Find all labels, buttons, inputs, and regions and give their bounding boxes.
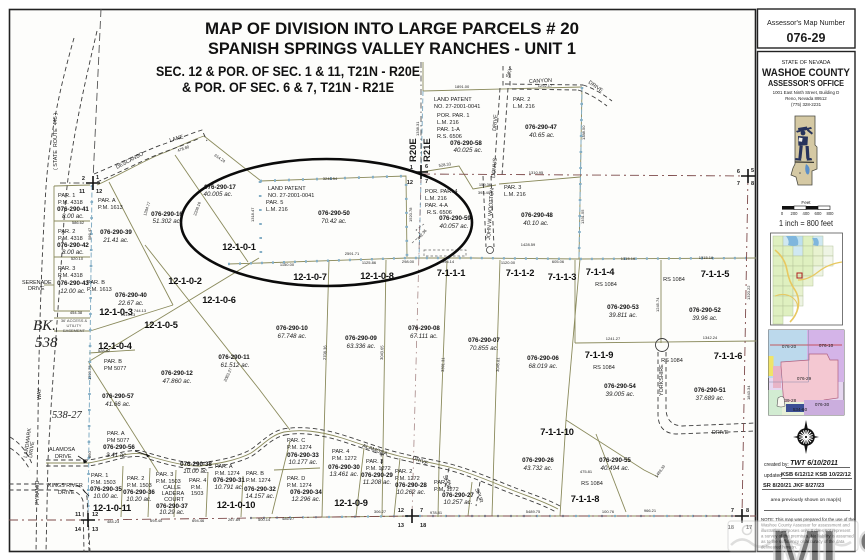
svg-text:076-290-27: 076-290-27: [442, 492, 474, 499]
svg-text:13.461 ac.: 13.461 ac.: [330, 471, 359, 478]
svg-text:7-1-1-4: 7-1-1-4: [586, 267, 616, 277]
svg-text:12-1-0-11: 12-1-0-11: [93, 503, 131, 513]
svg-text:R20E: R20E: [408, 138, 419, 162]
svg-text:40.494 ac.: 40.494 ac.: [601, 465, 630, 472]
svg-text:076-290-57: 076-290-57: [102, 393, 134, 400]
svg-text:520.10: 520.10: [71, 256, 84, 261]
svg-text:RS 1084: RS 1084: [593, 365, 615, 371]
svg-text:47.860 ac.: 47.860 ac.: [163, 378, 192, 385]
svg-text:1001 East Ninth Street, Buildi: 1001 East Ninth Street, Building D: [773, 90, 840, 95]
svg-text:076-290-55: 076-290-55: [599, 457, 631, 464]
svg-text:8: 8: [751, 181, 754, 187]
svg-text:076-290-53: 076-290-53: [607, 304, 639, 311]
svg-text:1150.00: 1150.00: [280, 262, 295, 267]
svg-text:37.689 ac.: 37.689 ac.: [696, 395, 725, 402]
svg-text:11: 11: [79, 189, 85, 195]
svg-text:STATE OF NEVADA: STATE OF NEVADA: [782, 60, 831, 66]
svg-text:076-290-52: 076-290-52: [689, 307, 721, 314]
svg-text:486.27: 486.27: [282, 516, 295, 521]
svg-text:1245.74: 1245.74: [655, 297, 660, 312]
svg-text:18: 18: [420, 523, 426, 529]
svg-text:2708.36: 2708.36: [322, 345, 328, 360]
svg-text:076-290-35: 076-290-35: [90, 486, 122, 493]
svg-text:076-290-42: 076-290-42: [57, 242, 89, 249]
svg-text:1891.00: 1891.00: [455, 84, 470, 89]
svg-text:076-290-43: 076-290-43: [57, 280, 89, 287]
svg-text:1: 1: [96, 175, 99, 181]
svg-text:7-1-1-9: 7-1-1-9: [585, 350, 614, 360]
svg-text:40.65 ac.: 40.65 ac.: [529, 132, 554, 139]
svg-text:8.00 ac.: 8.00 ac.: [62, 213, 84, 220]
svg-text:1125.86: 1125.86: [362, 260, 377, 265]
svg-text:076-290-56: 076-290-56: [103, 444, 135, 451]
svg-text:Assessor's Map Number: Assessor's Map Number: [767, 18, 846, 27]
svg-text:LAND PATENT: LAND PATENT: [434, 97, 472, 103]
svg-text:3391.31: 3391.31: [440, 357, 446, 372]
svg-text:WASHOE COUNTY: WASHOE COUNTY: [762, 67, 851, 79]
svg-text:R21E: R21E: [422, 138, 433, 162]
svg-text:076-290-31: 076-290-31: [213, 477, 245, 484]
svg-text:5489.75: 5489.75: [526, 509, 541, 514]
svg-text:area previously shown on map(s: area previously shown on map(s): [771, 497, 842, 503]
svg-text:PAR. 2: PAR. 2: [58, 229, 75, 235]
svg-text:694.46: 694.46: [192, 518, 205, 523]
svg-text:200: 200: [791, 211, 799, 216]
svg-text:PAR. 3: PAR. 3: [58, 266, 75, 272]
svg-text:67.748 ac.: 67.748 ac.: [278, 333, 307, 340]
svg-text:6: 6: [737, 169, 740, 175]
svg-text:51.302 ac.: 51.302 ac.: [153, 218, 182, 225]
svg-text:7-1-1-8: 7-1-1-8: [571, 494, 600, 504]
svg-text:2: 2: [82, 176, 85, 182]
svg-text:076-290-07: 076-290-07: [468, 337, 500, 344]
svg-text:L.M. 216: L.M. 216: [437, 120, 459, 126]
svg-text:14.157 ac.: 14.157 ac.: [246, 493, 275, 500]
svg-text:12-1-0-5: 12-1-0-5: [144, 320, 178, 330]
svg-text:076-290-06: 076-290-06: [527, 355, 559, 362]
svg-text:076-290-36: 076-290-36: [123, 489, 155, 496]
svg-text:L.M. 216: L.M. 216: [513, 104, 535, 110]
svg-text:12: 12: [398, 508, 404, 514]
svg-text:L.M. 216: L.M. 216: [266, 207, 288, 213]
svg-text:7-1-1-3: 7-1-1-3: [548, 272, 577, 282]
svg-text:EASEMENT: EASEMENT: [63, 328, 86, 333]
svg-text:RS 1084: RS 1084: [661, 358, 683, 364]
svg-text:694.40: 694.40: [150, 518, 163, 523]
svg-text:484.23: 484.23: [107, 519, 120, 524]
svg-text:12-1-0-10: 12-1-0-10: [217, 500, 256, 510]
svg-text:1503: 1503: [191, 491, 203, 497]
svg-text:1292.17: 1292.17: [538, 83, 553, 88]
svg-text:076-290-10: 076-290-10: [276, 325, 308, 332]
svg-text:800: 800: [827, 211, 835, 216]
svg-text:1241.27: 1241.27: [606, 336, 621, 341]
svg-text:12-1-0-7: 12-1-0-7: [293, 272, 327, 282]
svg-text:076-20: 076-20: [782, 344, 797, 349]
svg-text:PAR. C: PAR. C: [287, 438, 305, 444]
svg-text:3.41 ac.: 3.41 ac.: [106, 452, 128, 459]
svg-text:40.10 ac.: 40.10 ac.: [523, 220, 548, 227]
svg-text:076-290-16: 076-290-16: [151, 211, 183, 218]
svg-text:43.732 ac.: 43.732 ac.: [524, 465, 553, 472]
svg-text:PYRAMID: PYRAMID: [35, 480, 41, 505]
svg-text:1315.16: 1315.16: [621, 256, 636, 261]
svg-text:10.29 ac.: 10.29 ac.: [159, 509, 184, 516]
svg-text:PAR. A: PAR. A: [98, 198, 116, 204]
svg-text:PAR. A: PAR. A: [107, 431, 125, 437]
svg-text:70.855 ac.: 70.855 ac.: [470, 345, 499, 352]
svg-text:67.111 ac.: 67.111 ac.: [410, 333, 438, 340]
svg-text:995.14: 995.14: [442, 259, 455, 264]
svg-text:61.512 ac.: 61.512 ac.: [221, 362, 250, 369]
svg-text:400: 400: [803, 211, 811, 216]
svg-text:PAR. 3: PAR. 3: [366, 459, 383, 465]
svg-text:11.208 ac.: 11.208 ac.: [363, 479, 391, 486]
svg-text:076-30: 076-30: [815, 402, 830, 407]
svg-text:1342.24: 1342.24: [703, 335, 718, 340]
svg-text:454.38: 454.38: [70, 310, 83, 315]
svg-text:39.811 ac.: 39.811 ac.: [609, 312, 637, 319]
svg-text:ALAMOSA: ALAMOSA: [49, 447, 75, 453]
svg-text:(775) 328-2231: (775) 328-2231: [791, 102, 822, 107]
svg-text:PM 5077: PM 5077: [104, 366, 126, 372]
svg-text:744.13: 744.13: [134, 308, 147, 313]
svg-text:KINGS RIVER: KINGS RIVER: [48, 483, 83, 489]
svg-text:P.M. 1274: P.M. 1274: [287, 445, 312, 451]
svg-text:076-29: 076-29: [787, 31, 826, 45]
svg-text:14: 14: [75, 527, 82, 533]
svg-text:13: 13: [398, 523, 404, 529]
svg-text:P.M. 1613: P.M. 1613: [98, 205, 123, 211]
svg-text:POR. PAR. 4: POR. PAR. 4: [425, 189, 458, 195]
svg-text:39.96 ac.: 39.96 ac.: [692, 315, 717, 322]
svg-text:7: 7: [731, 508, 734, 514]
svg-text:1 inch = 800 feet: 1 inch = 800 feet: [779, 219, 834, 228]
svg-text:1120.00: 1120.00: [501, 260, 516, 265]
svg-text:528.42: 528.42: [98, 348, 111, 353]
svg-text:DRIVE: DRIVE: [55, 454, 72, 460]
svg-text:3045.81: 3045.81: [495, 357, 501, 372]
svg-text:586.47: 586.47: [87, 227, 92, 240]
svg-text:076-290-11: 076-290-11: [218, 354, 250, 361]
svg-text:22.67 ac.: 22.67 ac.: [117, 300, 143, 307]
svg-text:1388.50: 1388.50: [581, 125, 586, 140]
svg-text:1318.47: 1318.47: [250, 207, 255, 222]
svg-text:1723.75: 1723.75: [87, 365, 92, 380]
svg-text:MLS: MLS: [770, 516, 865, 560]
svg-text:860: 860: [87, 451, 92, 458]
svg-text:500.14: 500.14: [258, 517, 271, 522]
svg-text:076-29: 076-29: [797, 376, 812, 381]
svg-text:1: 1: [410, 165, 413, 171]
svg-text:12.00 ac.: 12.00 ac.: [60, 288, 85, 295]
svg-text:978.81: 978.81: [430, 510, 443, 515]
svg-text:21.41 ac.: 21.41 ac.: [102, 237, 128, 244]
svg-text:41.66 ac.: 41.66 ac.: [105, 401, 130, 408]
svg-text:1338.31: 1338.31: [415, 121, 420, 136]
svg-text:DRIVE: DRIVE: [712, 430, 729, 436]
svg-text:12-1-0-6: 12-1-0-6: [202, 295, 236, 305]
svg-text:1320.22: 1320.22: [746, 285, 751, 300]
svg-text:10.791 ac.: 10.791 ac.: [215, 484, 244, 491]
svg-text:KSB 6/12/12 KSB 10/22/12: KSB 6/12/12 KSB 10/22/12: [781, 472, 851, 478]
svg-text:966.21: 966.21: [644, 508, 657, 513]
svg-text:076-290-12: 076-290-12: [161, 370, 193, 377]
svg-text:538-27: 538-27: [52, 410, 82, 421]
svg-text:076-290-41: 076-290-41: [57, 206, 89, 213]
svg-text:PAR. 2: PAR. 2: [127, 476, 144, 482]
svg-text:076-290-17: 076-290-17: [204, 184, 236, 191]
svg-text:PAR. B: PAR. B: [246, 471, 264, 477]
svg-text:L.M. 216: L.M. 216: [425, 196, 447, 202]
svg-text:12: 12: [96, 189, 102, 195]
svg-text:RS 1084: RS 1084: [663, 277, 685, 283]
svg-text:475.81: 475.81: [580, 469, 593, 474]
svg-text:076-290-26: 076-290-26: [522, 457, 554, 464]
svg-text:L.M. 216: L.M. 216: [504, 192, 526, 198]
svg-text:586.62: 586.62: [72, 220, 85, 225]
svg-text:076-290-28: 076-290-28: [395, 482, 427, 489]
svg-text:6: 6: [425, 164, 428, 170]
svg-text:076-290-30: 076-290-30: [328, 464, 360, 471]
svg-text:5: 5: [751, 168, 754, 174]
svg-text:1331.55: 1331.55: [580, 209, 585, 224]
svg-text:076-290-47: 076-290-47: [525, 124, 557, 131]
svg-text:076-290-29: 076-290-29: [361, 472, 393, 479]
svg-text:40.025 ac.: 40.025 ac.: [454, 147, 483, 154]
svg-text:076-290-40: 076-290-40: [115, 292, 147, 299]
svg-text:076-290-51: 076-290-51: [694, 387, 726, 394]
svg-text:YORKSHIRE: YORKSHIRE: [659, 364, 665, 396]
svg-text:SPANISH SPRINGS VALLEY RANCHES: SPANISH SPRINGS VALLEY RANCHES - UNIT 1: [208, 39, 576, 58]
svg-text:& POR. OF SEC. 6 & 7, T21N -: & POR. OF SEC. 6 & 7, T21N - R21E: [182, 80, 394, 95]
svg-text:8.00 ac.: 8.00 ac.: [62, 249, 84, 256]
svg-text:159.36: 159.36: [479, 182, 492, 187]
svg-text:11: 11: [75, 512, 81, 518]
svg-text:7: 7: [425, 179, 428, 185]
svg-text:7-1-1-1: 7-1-1-1: [437, 268, 466, 278]
svg-text:PAR. 2: PAR. 2: [395, 469, 412, 475]
svg-text:076-290-34: 076-290-34: [290, 489, 322, 496]
svg-text:393.40: 393.40: [478, 190, 491, 195]
svg-text:7-1-1-10: 7-1-1-10: [540, 427, 574, 437]
svg-text:12-1-0-8: 12-1-0-8: [360, 271, 394, 281]
svg-text:3248.54: 3248.54: [323, 176, 338, 181]
svg-text:1315.16: 1315.16: [699, 255, 714, 260]
svg-text:PAR. 1-A: PAR. 1-A: [437, 127, 460, 133]
svg-text:PAR. 4-A: PAR. 4-A: [425, 203, 448, 209]
svg-text:10.00 ac.: 10.00 ac.: [93, 493, 118, 500]
svg-text:7-1-1-6: 7-1-1-6: [714, 351, 743, 361]
svg-text:076-290-08: 076-290-08: [408, 325, 440, 332]
svg-text:306.27: 306.27: [374, 509, 387, 514]
svg-text:534-60: 534-60: [793, 407, 808, 412]
svg-text:298.00: 298.00: [402, 259, 415, 264]
svg-text:PAR. 1: PAR. 1: [58, 193, 75, 199]
svg-text:PAR. 3: PAR. 3: [156, 472, 173, 478]
svg-text:P.M. 1274: P.M. 1274: [246, 478, 271, 484]
svg-text:Feet: Feet: [801, 200, 811, 205]
svg-text:076-290-50: 076-290-50: [318, 210, 350, 217]
svg-text:100.76: 100.76: [602, 509, 615, 514]
svg-text:40.057 ac.: 40.057 ac.: [440, 223, 469, 230]
svg-text:600: 600: [815, 211, 823, 216]
svg-text:RS 1084: RS 1084: [595, 282, 617, 288]
svg-text:7-1-1-2: 7-1-1-2: [506, 268, 535, 278]
svg-text:70.42 ac.: 70.42 ac.: [321, 218, 346, 225]
svg-text:created by:: created by:: [764, 462, 789, 468]
svg-text:68.019 ac.: 68.019 ac.: [529, 363, 558, 370]
svg-text:12: 12: [407, 180, 413, 186]
svg-text:12-1-0-9: 12-1-0-9: [334, 498, 368, 508]
svg-text:PAR. 2: PAR. 2: [513, 97, 530, 103]
svg-text:PAR. B: PAR. B: [104, 359, 122, 365]
svg-text:P.M. 1272: P.M. 1272: [332, 456, 357, 462]
svg-text:LAND PATENT: LAND PATENT: [268, 186, 306, 192]
svg-text:NO. 27-2001-0041: NO. 27-2001-0041: [268, 193, 314, 199]
svg-text:538: 538: [35, 335, 58, 351]
svg-text:076-10: 076-10: [819, 343, 834, 348]
svg-text:1520.78: 1520.78: [408, 207, 413, 222]
svg-text:PAR. D: PAR. D: [287, 476, 305, 482]
svg-text:PAR. 3: PAR. 3: [504, 185, 521, 191]
svg-text:10.262 ac.: 10.262 ac.: [397, 489, 426, 496]
svg-text:39.005 ac.: 39.005 ac.: [606, 391, 635, 398]
svg-text:SR 8/20/21 JKF 8/27/23: SR 8/20/21 JKF 8/27/23: [763, 483, 824, 489]
svg-text:1843.34: 1843.34: [746, 385, 751, 400]
svg-text:10.257 ac.: 10.257 ac.: [444, 499, 473, 506]
svg-text:DRIVE: DRIVE: [58, 490, 75, 496]
svg-text:076-290-54: 076-290-54: [604, 383, 636, 390]
svg-text:076-290-58: 076-290-58: [450, 140, 482, 147]
svg-text:DRIVE: DRIVE: [28, 286, 45, 292]
svg-text:076-290-09: 076-290-09: [345, 335, 377, 342]
svg-text:( STATE ROUTE 445 ): ( STATE ROUTE 445 ): [53, 113, 59, 170]
svg-text:076-290-38: 076-290-38: [180, 461, 212, 468]
svg-text:1428.59: 1428.59: [521, 242, 536, 247]
svg-text:10.00 ac.: 10.00 ac.: [183, 468, 208, 475]
svg-text:10.20 ac.: 10.20 ac.: [126, 496, 151, 503]
svg-text:PAR. 4: PAR. 4: [189, 478, 206, 484]
svg-text:PAR. 1: PAR. 1: [91, 473, 108, 479]
svg-text:ASSESSOR'S OFFICE: ASSESSOR'S OFFICE: [768, 79, 845, 88]
svg-text:63.336 ac.: 63.336 ac.: [347, 343, 376, 350]
svg-text:Reno, Nevada 89512: Reno, Nevada 89512: [785, 96, 827, 101]
svg-text:076-290-39: 076-290-39: [100, 229, 132, 236]
svg-text:WAY: WAY: [37, 388, 43, 400]
svg-text:8: 8: [746, 508, 749, 514]
svg-text:2591.71: 2591.71: [345, 251, 360, 256]
svg-text:12-1-0-2: 12-1-0-2: [168, 276, 202, 286]
svg-text:7: 7: [420, 508, 423, 514]
svg-text:076-290-48: 076-290-48: [521, 212, 553, 219]
svg-text:13: 13: [92, 527, 98, 533]
svg-text:POR. PAR. 1: POR. PAR. 1: [437, 113, 470, 119]
svg-text:076-290-59: 076-290-59: [439, 215, 471, 222]
svg-text:SEC. 12 & POR. OF SEC. 1 & 11,: SEC. 12 & POR. OF SEC. 1 & 11, T21N - R2…: [156, 64, 420, 79]
svg-text:076-290-32: 076-290-32: [244, 486, 276, 493]
svg-text:7-1-1-5: 7-1-1-5: [701, 269, 730, 279]
svg-text:12-1-0-1: 12-1-0-1: [222, 242, 256, 252]
svg-text:PAR. B: PAR. B: [87, 280, 105, 286]
svg-text:1310.95: 1310.95: [529, 170, 544, 175]
svg-text:updated: updated: [764, 473, 782, 479]
svg-text:10.177 ac.: 10.177 ac.: [289, 459, 318, 466]
svg-text:P.M. 4318: P.M. 4318: [58, 273, 83, 279]
svg-text:PAR. A: PAR. A: [215, 464, 233, 470]
svg-text:605.06: 605.06: [552, 259, 565, 264]
svg-text:40.005 ac.: 40.005 ac.: [204, 191, 233, 198]
svg-text:076-290-33: 076-290-33: [287, 452, 319, 459]
svg-text:12: 12: [92, 512, 98, 518]
svg-text:MAP OF DIVISION INTO LARGE PAR: MAP OF DIVISION INTO LARGE PARCELS # 20: [205, 19, 579, 38]
svg-text:TWT 6/10/2011: TWT 6/10/2011: [790, 460, 838, 467]
svg-text:PAR. 5: PAR. 5: [266, 200, 283, 206]
svg-text:267.89: 267.89: [228, 517, 241, 522]
svg-text:12.296 ac.: 12.296 ac.: [292, 496, 321, 503]
svg-text:BK.: BK.: [33, 318, 56, 334]
svg-text:NO. 27-2001-0041: NO. 27-2001-0041: [434, 104, 480, 110]
svg-text:3043.65: 3043.65: [379, 345, 385, 360]
svg-text:RS 1084: RS 1084: [581, 481, 603, 487]
svg-text:7: 7: [737, 181, 740, 187]
svg-text:P.M. 1613: P.M. 1613: [87, 287, 112, 293]
svg-text:PAR. 4: PAR. 4: [332, 449, 349, 455]
